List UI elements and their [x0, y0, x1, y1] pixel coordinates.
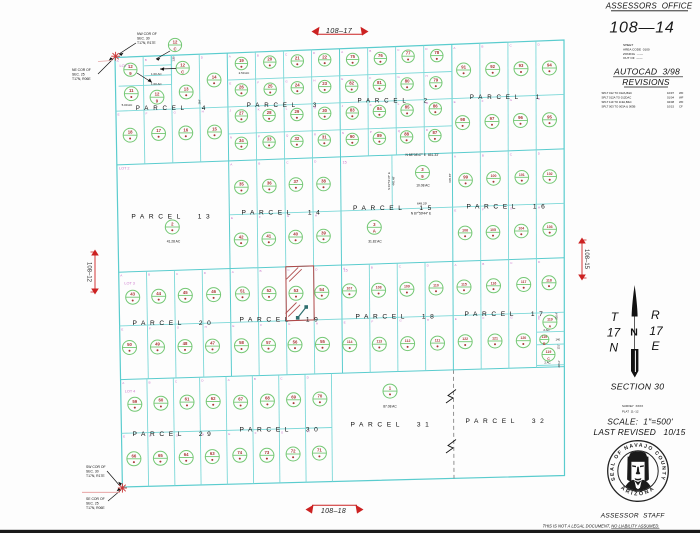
svg-text:90: 90: [350, 134, 355, 139]
svg-text:F: F: [482, 99, 484, 103]
svg-text:C: C: [176, 272, 179, 276]
svg-text:60: 60: [159, 398, 164, 403]
svg-text:84: 84: [377, 106, 382, 111]
svg-text:31: 31: [322, 135, 327, 140]
svg-text:64: 64: [184, 452, 189, 457]
svg-text:C: C: [287, 268, 290, 272]
svg-text:D: D: [427, 264, 430, 268]
svg-text:58: 58: [239, 340, 244, 345]
svg-text:A: A: [229, 55, 232, 59]
svg-text:105: 105: [490, 228, 496, 232]
svg-text:P: P: [258, 134, 260, 138]
svg-text:D: D: [315, 267, 318, 271]
svg-text:39: 39: [321, 231, 326, 236]
svg-text:82: 82: [349, 81, 354, 86]
svg-text:45: 45: [183, 290, 188, 295]
svg-text:SEC. 25: SEC. 25: [72, 73, 85, 77]
svg-text:SEC. 30: SEC. 30: [86, 470, 99, 474]
svg-text:120: 120: [520, 336, 526, 340]
svg-text:J: J: [342, 104, 344, 108]
svg-text:31.82 AC: 31.82 AC: [368, 240, 382, 244]
svg-text:116: 116: [491, 281, 497, 285]
svg-text:J: J: [230, 108, 232, 112]
svg-text:87: 87: [433, 130, 438, 135]
svg-text:C: C: [280, 376, 283, 380]
svg-text:10/97: 10/97: [667, 91, 674, 95]
svg-text:113: 113: [376, 340, 382, 344]
svg-text:110: 110: [433, 284, 439, 288]
svg-text:28: 28: [267, 110, 272, 115]
svg-text:C: C: [285, 52, 288, 56]
svg-text:42: 42: [239, 234, 244, 239]
svg-text:13: 13: [184, 87, 189, 92]
svg-text:70: 70: [318, 394, 323, 399]
svg-text:94: 94: [547, 63, 552, 68]
svg-text:A: A: [117, 59, 120, 63]
svg-text:3: 3: [373, 222, 376, 227]
svg-text:E: E: [228, 432, 230, 436]
svg-text:23: 23: [322, 81, 327, 86]
svg-text:H: H: [202, 433, 204, 437]
svg-text:85: 85: [405, 105, 410, 110]
svg-text:SPLT 003 TO 003A & 003B: SPLT 003 TO 003A & 003B: [602, 104, 636, 108]
svg-text:1.00 AC: 1.00 AC: [151, 82, 163, 86]
svg-text:B: B: [481, 45, 483, 49]
svg-text:A: A: [228, 378, 231, 382]
svg-text:100: 100: [491, 174, 497, 178]
svg-text:Q: Q: [286, 133, 289, 137]
svg-text:56: 56: [293, 339, 298, 344]
svg-text:69: 69: [291, 394, 296, 399]
svg-text:PARCEL 31: PARCEL 31: [351, 421, 434, 428]
svg-text:N: N: [342, 131, 344, 135]
svg-text:C: C: [397, 48, 400, 52]
svg-text:L: L: [286, 106, 288, 110]
svg-text:38: 38: [321, 179, 326, 184]
svg-text:OUT OF ------: OUT OF ------: [623, 56, 643, 60]
svg-text:72: 72: [291, 449, 296, 454]
svg-text:49: 49: [155, 342, 160, 347]
svg-text:108–17: 108–17: [326, 26, 353, 35]
svg-text:108: 108: [376, 286, 382, 290]
svg-text:F: F: [483, 316, 485, 320]
svg-text:H: H: [205, 325, 207, 329]
svg-text:H: H: [202, 109, 204, 113]
svg-text:LOT 4: LOT 4: [125, 390, 135, 394]
svg-text:86: 86: [433, 103, 438, 108]
svg-text:649.29': 649.29': [417, 202, 427, 206]
svg-text:F: F: [369, 76, 371, 80]
svg-text:E: E: [118, 113, 120, 117]
svg-text:118: 118: [546, 278, 552, 282]
svg-text:P: P: [370, 130, 372, 134]
svg-text:68: 68: [265, 396, 270, 401]
svg-text:1.30: 1.30: [172, 56, 176, 62]
svg-text:92: 92: [490, 64, 495, 69]
svg-text:24: 24: [295, 82, 300, 87]
svg-text:R: R: [651, 308, 660, 322]
svg-text:T17N, R17E: T17N, R17E: [137, 41, 156, 45]
svg-text:16: 16: [183, 127, 188, 132]
svg-text:87.08 AC: 87.08 AC: [383, 405, 397, 409]
svg-text:D: D: [425, 47, 428, 51]
svg-text:30: 30: [322, 108, 327, 113]
svg-text:99: 99: [463, 175, 468, 180]
svg-text:M: M: [314, 105, 317, 109]
svg-text:E: E: [538, 317, 540, 321]
svg-text:59: 59: [132, 399, 137, 404]
svg-text:PARCEL 32: PARCEL 32: [466, 418, 549, 425]
svg-text:12: 12: [155, 92, 160, 97]
svg-text:E: E: [229, 82, 231, 86]
svg-text:2: 2: [171, 222, 174, 227]
svg-text:101: 101: [519, 173, 525, 177]
svg-text:119: 119: [541, 335, 547, 339]
svg-text:52: 52: [267, 288, 272, 293]
svg-text:79: 79: [433, 77, 438, 82]
svg-text:H: H: [538, 206, 540, 210]
svg-text:9: 9: [129, 71, 132, 76]
svg-text:117: 117: [521, 280, 527, 284]
svg-text:E: E: [121, 327, 123, 331]
svg-text:104: 104: [518, 227, 524, 231]
svg-text:WF: WF: [679, 95, 684, 99]
svg-text:C: C: [181, 69, 184, 74]
svg-text:12: 12: [173, 40, 178, 45]
svg-text:R: R: [314, 132, 317, 136]
svg-text:B: B: [371, 266, 373, 270]
svg-text:LOT 1: LOT 1: [120, 64, 130, 68]
svg-text:T17N, R06E: T17N, R06E: [86, 506, 105, 510]
svg-text:N: N: [609, 341, 618, 355]
svg-text:M: M: [426, 101, 429, 105]
svg-text:D: D: [201, 56, 204, 60]
svg-text:B: B: [482, 153, 484, 157]
svg-text:37: 37: [294, 179, 299, 184]
svg-text:NE COR OF: NE COR OF: [72, 68, 91, 72]
svg-text:C: C: [286, 160, 289, 164]
svg-text:10/15: 10/15: [667, 104, 674, 108]
svg-text:SE COR OF: SE COR OF: [86, 497, 105, 501]
svg-text:26: 26: [239, 84, 244, 89]
svg-text:98: 98: [460, 117, 465, 122]
svg-text:B: B: [257, 53, 259, 57]
svg-text:L: L: [398, 102, 400, 106]
svg-text:PARCEL 14: PARCEL 14: [242, 210, 325, 217]
svg-text:63: 63: [210, 451, 215, 456]
svg-text:95: 95: [547, 114, 552, 119]
svg-text:17: 17: [156, 128, 161, 133]
svg-text:A: A: [341, 50, 344, 54]
svg-text:T17N, R17E: T17N, R17E: [86, 474, 105, 478]
svg-text:51: 51: [240, 288, 245, 293]
svg-text:25: 25: [268, 84, 273, 89]
svg-text:17: 17: [649, 324, 664, 338]
svg-text:B: B: [369, 49, 371, 53]
svg-text:43: 43: [130, 292, 135, 297]
svg-text:B: B: [260, 269, 262, 273]
svg-text:A: A: [232, 270, 235, 274]
svg-text:55: 55: [320, 339, 325, 344]
svg-text:50: 50: [127, 342, 132, 347]
svg-text:D: D: [538, 43, 541, 47]
svg-text:21: 21: [295, 56, 300, 61]
svg-text:445.48': 445.48': [392, 176, 396, 186]
svg-text:9: 9: [421, 174, 424, 179]
svg-text:A: A: [120, 274, 123, 278]
svg-text:9: 9: [156, 99, 159, 104]
svg-text:22: 22: [322, 54, 327, 59]
svg-text:3: 3: [421, 167, 424, 172]
svg-text:103: 103: [547, 225, 553, 229]
svg-text:LOT 3: LOT 3: [124, 282, 134, 286]
svg-text:111: 111: [435, 339, 441, 343]
svg-text:65: 65: [158, 453, 163, 458]
svg-text:N: N: [630, 327, 638, 339]
svg-text:54: 54: [319, 287, 324, 292]
svg-text:PARCEL 17: PARCEL 17: [465, 311, 548, 318]
svg-text:C: C: [510, 44, 513, 48]
svg-text:20: 20: [267, 57, 272, 62]
svg-text:E: E: [651, 339, 660, 353]
svg-text:SECTION 30: SECTION 30: [611, 381, 665, 391]
svg-text:LAST REVISED 10/15: LAST REVISED 10/15: [594, 427, 686, 437]
svg-text:11: 11: [129, 88, 134, 93]
svg-text:96: 96: [518, 115, 523, 120]
svg-text:10.08 AC: 10.08 AC: [416, 184, 430, 188]
svg-text:SPLT 119 TO 119A,B&C: SPLT 119 TO 119A,B&C: [602, 100, 632, 104]
svg-text:5.00 AC: 5.00 AC: [122, 103, 134, 107]
svg-text:44: 44: [156, 291, 161, 296]
svg-text:1.00 AC: 1.00 AC: [151, 72, 163, 76]
svg-text:106: 106: [462, 228, 468, 232]
svg-text:C: C: [175, 380, 178, 384]
svg-text:B: B: [148, 273, 150, 277]
svg-text:F: F: [255, 431, 257, 435]
svg-text:WF: WF: [679, 100, 684, 104]
svg-text:D: D: [204, 271, 207, 275]
svg-text:19: 19: [239, 58, 244, 63]
svg-text:R: R: [426, 128, 429, 132]
svg-text:E: E: [232, 324, 234, 328]
svg-text:PARCEL 13: PARCEL 13: [131, 213, 214, 220]
svg-text:D: D: [201, 379, 204, 383]
svg-text:108—14: 108—14: [609, 19, 674, 36]
svg-text:SPLT 012 TO 012A,B&C: SPLT 012 TO 012A,B&C: [602, 91, 633, 95]
svg-text:B: B: [258, 161, 260, 165]
svg-text:H: H: [538, 97, 540, 101]
svg-text:112: 112: [405, 339, 411, 343]
svg-text:H: H: [427, 318, 429, 322]
svg-text:107: 107: [346, 286, 352, 290]
svg-text:34: 34: [239, 138, 244, 143]
svg-text:C: C: [173, 46, 176, 51]
svg-text:N: N: [230, 135, 232, 139]
svg-text:57: 57: [266, 340, 271, 345]
svg-text:A: A: [453, 46, 456, 50]
svg-text:AREA CODE 0100: AREA CODE 0100: [623, 47, 650, 51]
svg-text:D: D: [538, 151, 541, 155]
svg-text:LOT 2: LOT 2: [119, 167, 129, 171]
svg-text:108–15: 108–15: [583, 249, 589, 270]
svg-text:41.28 AC: 41.28 AC: [167, 240, 181, 244]
svg-text:119: 119: [547, 318, 553, 322]
svg-text:61: 61: [185, 397, 190, 402]
svg-text:H: H: [307, 430, 309, 434]
svg-text:H: H: [426, 74, 428, 78]
svg-text:32: 32: [295, 136, 300, 141]
svg-text:N 87°59'44" E: N 87°59'44" E: [411, 212, 432, 216]
svg-text:29: 29: [295, 109, 300, 114]
svg-text:SEC. 25: SEC. 25: [86, 502, 99, 506]
svg-text:81: 81: [377, 80, 382, 85]
svg-text:97: 97: [490, 116, 495, 121]
svg-text:102: 102: [547, 172, 553, 176]
svg-text:F: F: [260, 323, 262, 327]
svg-text:SEC. 30: SEC. 30: [137, 37, 150, 41]
svg-text:F: F: [259, 215, 261, 219]
svg-text:91: 91: [461, 65, 466, 70]
svg-text:216.4': 216.4': [555, 312, 559, 319]
svg-text:115: 115: [461, 283, 467, 287]
svg-text:78: 78: [434, 50, 439, 55]
svg-text:E: E: [341, 77, 343, 81]
svg-text:SURVEY XXXX: SURVEY XXXX: [622, 404, 643, 408]
svg-text:83: 83: [350, 108, 355, 113]
svg-text:NW COR OF: NW COR OF: [137, 32, 157, 36]
svg-text:S 01°51'37" E: S 01°51'37" E: [387, 172, 391, 190]
svg-text:CF: CF: [679, 104, 683, 108]
svg-text:B: B: [482, 262, 484, 266]
svg-text:1: 1: [389, 386, 392, 391]
svg-text:A: A: [454, 154, 457, 158]
svg-text:47: 47: [210, 341, 215, 346]
svg-text:B: B: [149, 380, 151, 384]
svg-text:2 AC: 2 AC: [544, 361, 550, 365]
svg-text:SCALE: 1"=500': SCALE: 1"=500': [607, 417, 673, 427]
svg-text:80: 80: [405, 79, 410, 84]
svg-text:18: 18: [128, 130, 133, 135]
svg-text:108–18: 108–18: [321, 508, 346, 515]
svg-text:ASSESSOR STAFF: ASSESSOR STAFF: [600, 512, 666, 519]
svg-text:AUTOCAD 3/98: AUTOCAD 3/98: [613, 67, 680, 77]
svg-text:E: E: [454, 100, 456, 104]
svg-text:122: 122: [462, 337, 468, 341]
svg-text:F: F: [482, 208, 484, 212]
svg-text:140: 140: [556, 338, 561, 342]
svg-text:E: E: [454, 209, 456, 213]
svg-text:35: 35: [239, 182, 244, 187]
svg-text:ASSESSORS OFFICE: ASSESSORS OFFICE: [605, 2, 693, 11]
svg-text:ZONING ------: ZONING ------: [623, 52, 643, 56]
svg-text:62: 62: [211, 396, 216, 401]
svg-text:41: 41: [266, 234, 271, 239]
svg-text:76: 76: [378, 53, 383, 58]
svg-text:E: E: [123, 435, 125, 439]
svg-text:01/04: 01/04: [667, 95, 674, 99]
svg-text:D: D: [307, 376, 310, 380]
svg-text:D: D: [538, 260, 541, 264]
svg-text:15: 15: [212, 127, 217, 132]
svg-text:15: 15: [344, 269, 348, 273]
svg-text:2.50 AC: 2.50 AC: [239, 71, 251, 75]
svg-text:75: 75: [350, 54, 355, 59]
svg-text:27: 27: [239, 111, 244, 116]
svg-text:48: 48: [183, 341, 188, 346]
svg-text:D: D: [314, 159, 317, 163]
svg-text:E: E: [231, 216, 233, 220]
svg-text:93: 93: [519, 63, 524, 68]
svg-text:C: C: [510, 152, 513, 156]
svg-text:114: 114: [347, 340, 353, 344]
svg-text:F: F: [371, 320, 373, 324]
svg-text:131': 131': [557, 344, 561, 349]
svg-text:04/08: 04/08: [667, 100, 674, 104]
svg-text:THIS IS NOT A LEGAL DOCUMENT,: THIS IS NOT A LEGAL DOCUMENT, NO LIABILI…: [543, 523, 660, 528]
svg-text:36: 36: [267, 181, 272, 186]
svg-text:2 AC: 2 AC: [543, 328, 549, 332]
svg-text:88: 88: [404, 131, 409, 136]
svg-text:G: G: [285, 79, 288, 83]
svg-text:T: T: [611, 310, 620, 324]
svg-text:73: 73: [265, 450, 270, 455]
svg-text:66: 66: [132, 453, 137, 458]
svg-text:12: 12: [180, 63, 185, 68]
svg-text:WF: WF: [679, 91, 684, 95]
svg-text:B: B: [254, 377, 256, 381]
svg-text:A: A: [230, 162, 233, 166]
svg-text:109: 109: [404, 285, 410, 289]
svg-text:E: E: [455, 317, 457, 321]
svg-text:33: 33: [267, 137, 272, 142]
svg-text:F: F: [146, 112, 148, 116]
svg-text:14: 14: [212, 75, 217, 80]
svg-text:77: 77: [406, 51, 411, 56]
svg-text:121: 121: [492, 337, 498, 341]
svg-text:T17N, R06E: T17N, R06E: [72, 77, 91, 81]
svg-text:A: A: [122, 381, 125, 385]
svg-text:89: 89: [377, 133, 382, 138]
svg-text:SW COR OF: SW COR OF: [86, 465, 106, 469]
svg-text:53: 53: [294, 288, 299, 293]
svg-text:264': 264': [198, 99, 202, 104]
svg-text:G: G: [397, 75, 400, 79]
svg-text:67: 67: [238, 397, 243, 402]
svg-text:215.2': 215.2': [557, 360, 561, 367]
svg-text:E: E: [344, 321, 346, 325]
svg-text:71: 71: [317, 448, 322, 453]
svg-text:F: F: [149, 434, 151, 438]
svg-text:15: 15: [343, 160, 347, 164]
svg-text:SPLT 012A TO 012DAC: SPLT 012A TO 012DAC: [602, 95, 632, 99]
svg-text:C: C: [510, 261, 513, 265]
svg-text:108–12: 108–12: [86, 262, 92, 283]
svg-text:A: A: [455, 263, 458, 267]
svg-text:N 88°08'47" E 651.33': N 88°08'47" E 651.33': [405, 153, 438, 157]
svg-text:H: H: [316, 321, 318, 325]
svg-text:REVISIONS: REVISIONS: [622, 77, 670, 87]
svg-text:A: A: [373, 229, 376, 234]
svg-text:PLAT 11–12: PLAT 11–12: [622, 410, 639, 414]
svg-text:B: B: [145, 58, 147, 62]
svg-text:645.87': 645.87': [448, 173, 452, 183]
svg-text:SHEET: SHEET: [623, 43, 633, 47]
svg-text:D: D: [313, 51, 316, 55]
svg-text:PARCEL 20: PARCEL 20: [133, 320, 216, 327]
svg-text:H: H: [315, 213, 317, 217]
svg-text:119: 119: [546, 350, 552, 354]
svg-text:C: C: [399, 265, 402, 269]
